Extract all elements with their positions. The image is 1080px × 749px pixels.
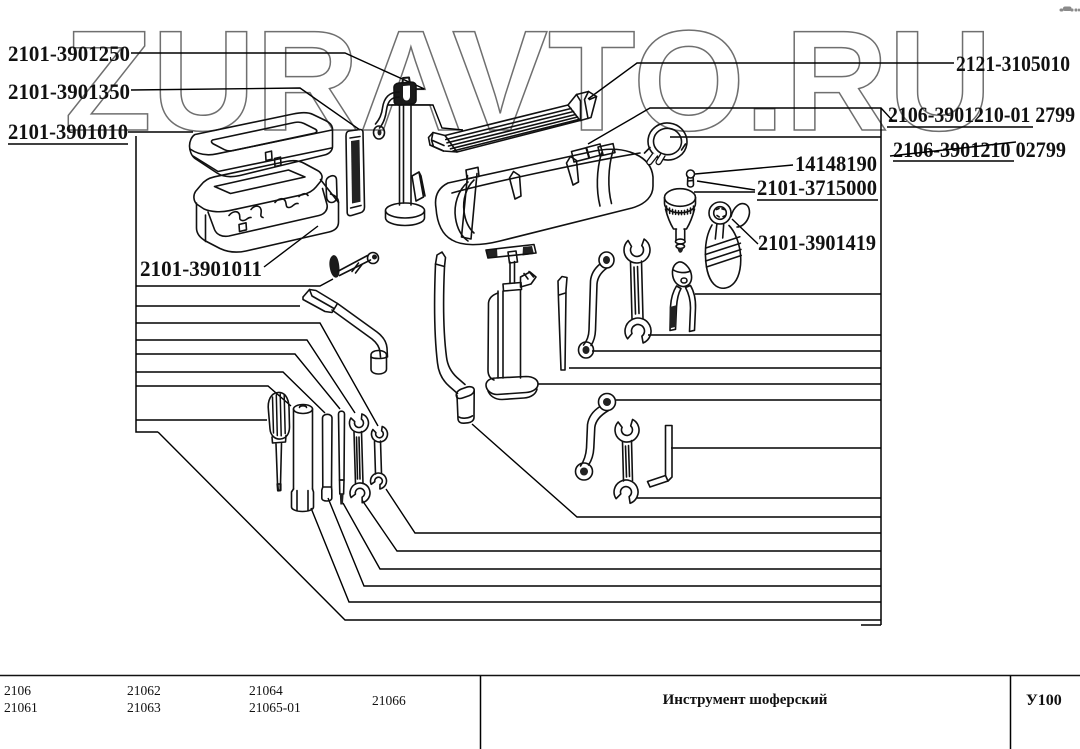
svg-text:2101-3901419: 2101-3901419 [758,230,876,255]
svg-text:2121-3105010: 2121-3105010 [956,51,1070,76]
svg-text:21064: 21064 [249,683,283,698]
svg-text:2101-3901010: 2101-3901010 [8,119,128,144]
svg-text:Инструмент шоферский: Инструмент шоферский [663,692,828,708]
svg-text:2101-3901250: 2101-3901250 [8,41,130,66]
svg-text:2101-3901011: 2101-3901011 [140,256,262,281]
svg-text:21065-01: 21065-01 [249,700,301,715]
svg-text:2101-3715000: 2101-3715000 [757,175,877,200]
svg-text:21063: 21063 [127,700,161,715]
svg-text:21066: 21066 [372,693,406,708]
svg-text:2106: 2106 [4,683,31,698]
svg-text:21061: 21061 [4,700,38,715]
svg-text:2106-3901210-01 2799: 2106-3901210-01 2799 [888,102,1075,127]
svg-text:14148190: 14148190 [795,151,877,176]
svg-text:2106-3901210 02799: 2106-3901210 02799 [893,137,1066,162]
svg-text:21062: 21062 [127,683,161,698]
svg-text:У100: У100 [1026,692,1062,709]
svg-text:2101-3901350: 2101-3901350 [8,79,130,104]
